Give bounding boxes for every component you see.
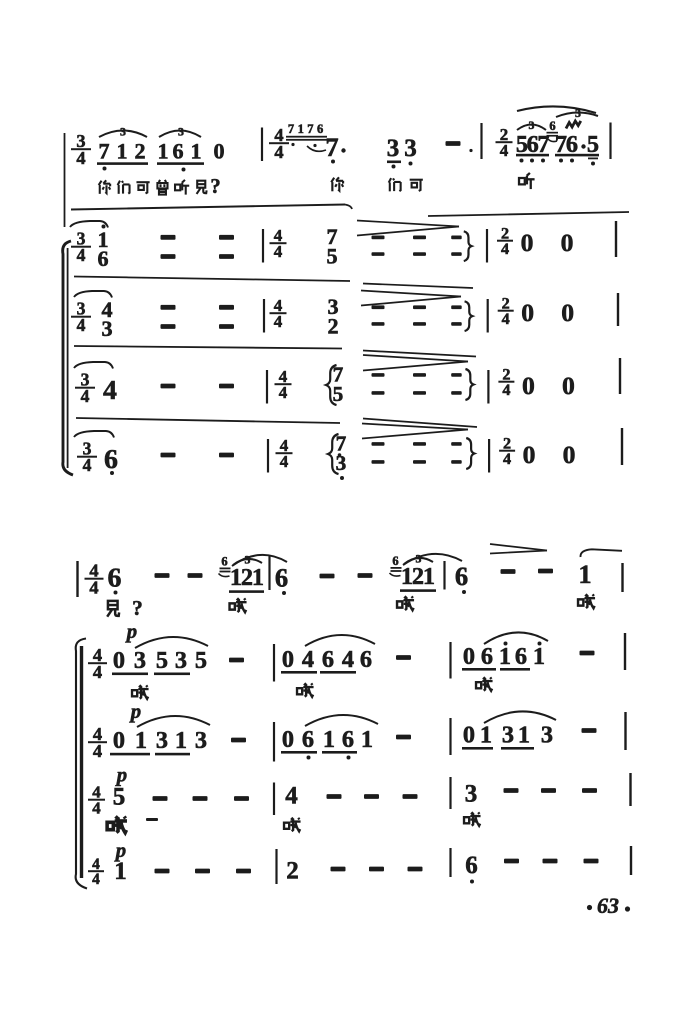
svg-text:4: 4 — [342, 646, 354, 673]
svg-text:1: 1 — [323, 726, 335, 753]
svg-text:0: 0 — [463, 643, 475, 670]
svg-text:5: 5 — [113, 784, 126, 811]
svg-text:5: 5 — [195, 647, 207, 674]
svg-text:1: 1 — [423, 563, 435, 590]
svg-text:4: 4 — [92, 798, 101, 817]
svg-text:1: 1 — [518, 722, 530, 749]
svg-text:1: 1 — [157, 139, 168, 164]
svg-text:p: p — [125, 620, 137, 643]
svg-text:0: 0 — [522, 371, 535, 400]
svg-text:5: 5 — [333, 382, 344, 406]
svg-text:1: 1 — [533, 643, 545, 670]
svg-text:4: 4 — [274, 312, 283, 331]
svg-text:3: 3 — [541, 722, 553, 749]
svg-text:7: 7 — [307, 122, 313, 136]
svg-text:6: 6 — [108, 563, 122, 594]
svg-text:?: ? — [210, 176, 220, 198]
svg-text:7: 7 — [288, 122, 294, 136]
svg-text:4: 4 — [503, 450, 511, 468]
svg-text:0: 0 — [521, 228, 534, 257]
svg-text:4: 4 — [280, 452, 289, 471]
svg-text:1: 1 — [578, 559, 591, 589]
svg-text:0: 0 — [563, 440, 576, 469]
svg-text:0: 0 — [282, 726, 294, 753]
svg-text:6: 6 — [104, 444, 118, 475]
svg-text:4: 4 — [81, 386, 90, 406]
svg-text:0: 0 — [561, 228, 574, 257]
svg-text:4: 4 — [279, 383, 288, 402]
svg-text:6: 6 — [221, 555, 227, 569]
svg-text:3: 3 — [156, 727, 168, 754]
svg-text:6: 6 — [392, 554, 398, 568]
svg-text:6: 6 — [515, 643, 527, 670]
svg-text:4: 4 — [103, 375, 117, 406]
svg-text:1: 1 — [499, 643, 511, 670]
svg-text:4: 4 — [93, 741, 102, 761]
svg-text:1: 1 — [252, 564, 264, 591]
svg-text:0: 0 — [213, 139, 224, 164]
svg-text:3: 3 — [175, 647, 187, 674]
svg-text:2: 2 — [286, 858, 299, 885]
svg-text:4: 4 — [274, 242, 283, 261]
svg-text:4: 4 — [77, 245, 86, 265]
svg-text:4: 4 — [502, 310, 510, 328]
svg-text:4: 4 — [89, 577, 98, 597]
svg-text:6: 6 — [342, 726, 354, 753]
svg-text:6: 6 — [481, 643, 493, 670]
svg-text:1: 1 — [480, 722, 492, 749]
svg-text:?: ? — [132, 596, 143, 620]
svg-text:3: 3 — [387, 135, 400, 162]
svg-text:4: 4 — [92, 871, 100, 888]
svg-text:0: 0 — [282, 646, 294, 673]
svg-text:6: 6 — [455, 561, 468, 591]
svg-text:6: 6 — [97, 246, 108, 271]
svg-text:3: 3 — [178, 125, 184, 139]
svg-text:63: 63 — [597, 893, 619, 918]
svg-text:5: 5 — [326, 244, 337, 269]
svg-text:0: 0 — [113, 647, 125, 674]
svg-text:4: 4 — [501, 240, 509, 258]
svg-text:1: 1 — [116, 139, 127, 164]
svg-text:4: 4 — [500, 141, 509, 160]
svg-text:3: 3 — [195, 727, 207, 754]
svg-text:6: 6 — [322, 646, 334, 673]
svg-text:6: 6 — [302, 726, 314, 753]
svg-text:5: 5 — [156, 647, 168, 674]
svg-text:3: 3 — [245, 553, 251, 567]
svg-text:0: 0 — [562, 371, 575, 400]
svg-text:0: 0 — [561, 298, 574, 327]
svg-text:1: 1 — [114, 858, 127, 885]
svg-text:4: 4 — [274, 142, 283, 162]
svg-text:3: 3 — [120, 125, 126, 139]
svg-text:3: 3 — [336, 451, 347, 475]
svg-text:0: 0 — [463, 722, 475, 749]
svg-text:3: 3 — [404, 135, 417, 162]
svg-text:0: 0 — [113, 727, 125, 754]
svg-text:3: 3 — [529, 118, 535, 132]
svg-text:4: 4 — [76, 148, 85, 168]
svg-text:3: 3 — [134, 647, 146, 674]
svg-text:1: 1 — [298, 122, 304, 136]
svg-text:7: 7 — [325, 132, 338, 162]
svg-text:4: 4 — [302, 646, 314, 673]
svg-text:6: 6 — [317, 122, 323, 136]
svg-text:3: 3 — [465, 781, 478, 808]
svg-text:4: 4 — [502, 381, 510, 399]
svg-text:6: 6 — [465, 852, 478, 879]
svg-text:2: 2 — [134, 139, 145, 164]
svg-text:1: 1 — [135, 727, 147, 754]
svg-text:0: 0 — [523, 440, 536, 469]
svg-text:p: p — [129, 700, 141, 723]
svg-text:6: 6 — [172, 139, 183, 164]
svg-text:6: 6 — [360, 646, 372, 673]
svg-text:1: 1 — [190, 139, 201, 164]
svg-text:1: 1 — [175, 727, 187, 754]
svg-text:7: 7 — [98, 139, 109, 164]
svg-text:3: 3 — [101, 316, 112, 341]
svg-text:4: 4 — [77, 315, 86, 335]
svg-text:6: 6 — [275, 563, 288, 593]
svg-text:4: 4 — [83, 455, 92, 475]
svg-text:2: 2 — [327, 314, 338, 339]
svg-text:3: 3 — [502, 722, 514, 749]
svg-text:1: 1 — [361, 726, 373, 753]
svg-text:4: 4 — [285, 783, 298, 810]
svg-text:0: 0 — [521, 298, 534, 327]
svg-text:4: 4 — [93, 662, 102, 682]
